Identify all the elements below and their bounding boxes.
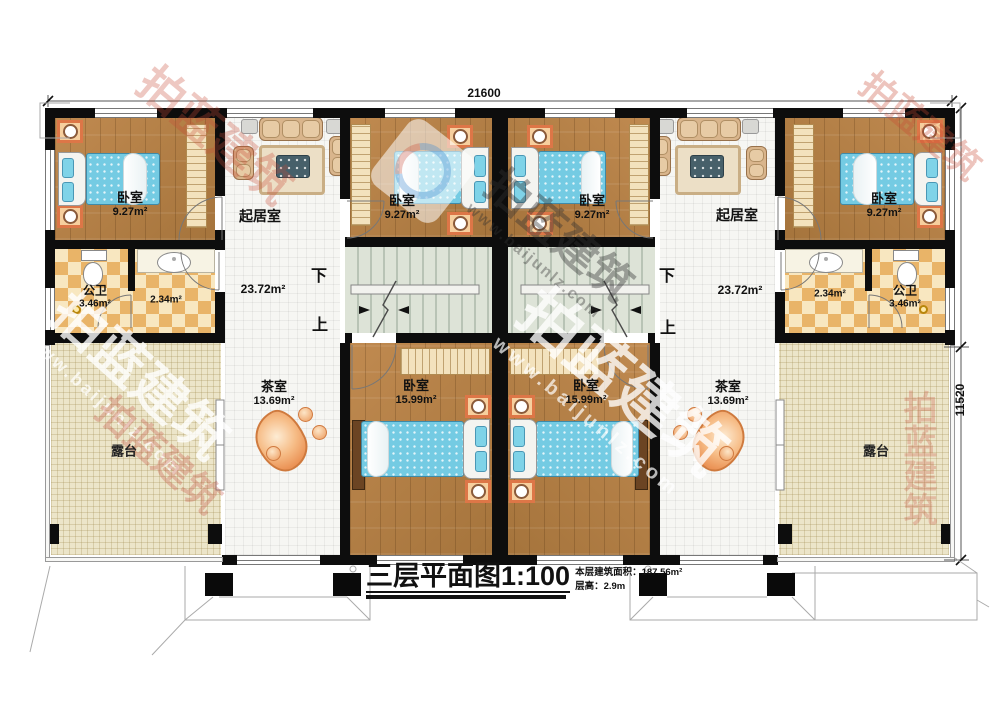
stair-down-l: 下 <box>311 268 327 286</box>
dim-right: 11520 <box>954 384 968 417</box>
room-label-bedroom-bl: 卧室 15.99m² <box>396 379 437 407</box>
room-label-terrace-l: 露台 <box>111 445 137 460</box>
floor-height-note: 层高：2.9m <box>575 580 682 594</box>
room-label-bedroom-cl: 卧室 9.27m² <box>385 194 420 222</box>
room-area-living-l: 23.72m² <box>241 283 286 297</box>
room-label-bedroom-tl: 卧室 9.27m² <box>113 191 148 219</box>
room-label-bath-r: 公卫 3.46m² <box>889 284 921 309</box>
room-label-tea-l: 茶室 13.69m² <box>254 380 295 408</box>
floor-plan: 拍蓝建筑 拍蓝建筑 www.baijunlz.com 拍蓝建筑 www.baij… <box>0 0 1000 706</box>
room-label-terrace-r: 露台 <box>863 445 889 460</box>
room-area-living-r: 23.72m² <box>718 284 763 298</box>
room-label-bedroom-cr: 卧室 9.27m² <box>575 194 610 222</box>
stair-down-r: 下 <box>659 268 675 286</box>
door-and-stair-lines <box>500 108 955 565</box>
door-and-stair-lines <box>45 108 500 565</box>
dim-top: 21600 <box>467 87 500 101</box>
room-area-wash-l: 2.34m² <box>150 294 182 306</box>
room-label-bedroom-tr: 卧室 9.27m² <box>867 192 902 220</box>
title-underline-bar <box>366 595 566 599</box>
room-label-tea-r: 茶室 13.69m² <box>708 380 749 408</box>
stair-up-r: 上 <box>660 320 676 338</box>
stair-up-l: 上 <box>312 317 328 335</box>
room-label-living-l: 起居室 <box>239 208 281 224</box>
floor-area-note: 本层建筑面积：187.56m² <box>575 566 682 580</box>
title-notes: 本层建筑面积：187.56m² 层高：2.9m <box>575 566 682 595</box>
room-label-living-r: 起居室 <box>716 207 758 223</box>
dwelling-unit-right <box>500 108 955 565</box>
title-block: 三层平面图1:100 本层建筑面积：187.56m² 层高：2.9m <box>366 562 682 599</box>
room-area-wash-r: 2.34m² <box>814 288 846 300</box>
room-label-bath-l: 公卫 3.46m² <box>79 284 111 309</box>
dwelling-unit-left <box>45 108 500 565</box>
room-label-bedroom-br: 卧室 15.99m² <box>566 379 607 407</box>
drawing-title: 三层平面图1:100 <box>366 562 570 593</box>
